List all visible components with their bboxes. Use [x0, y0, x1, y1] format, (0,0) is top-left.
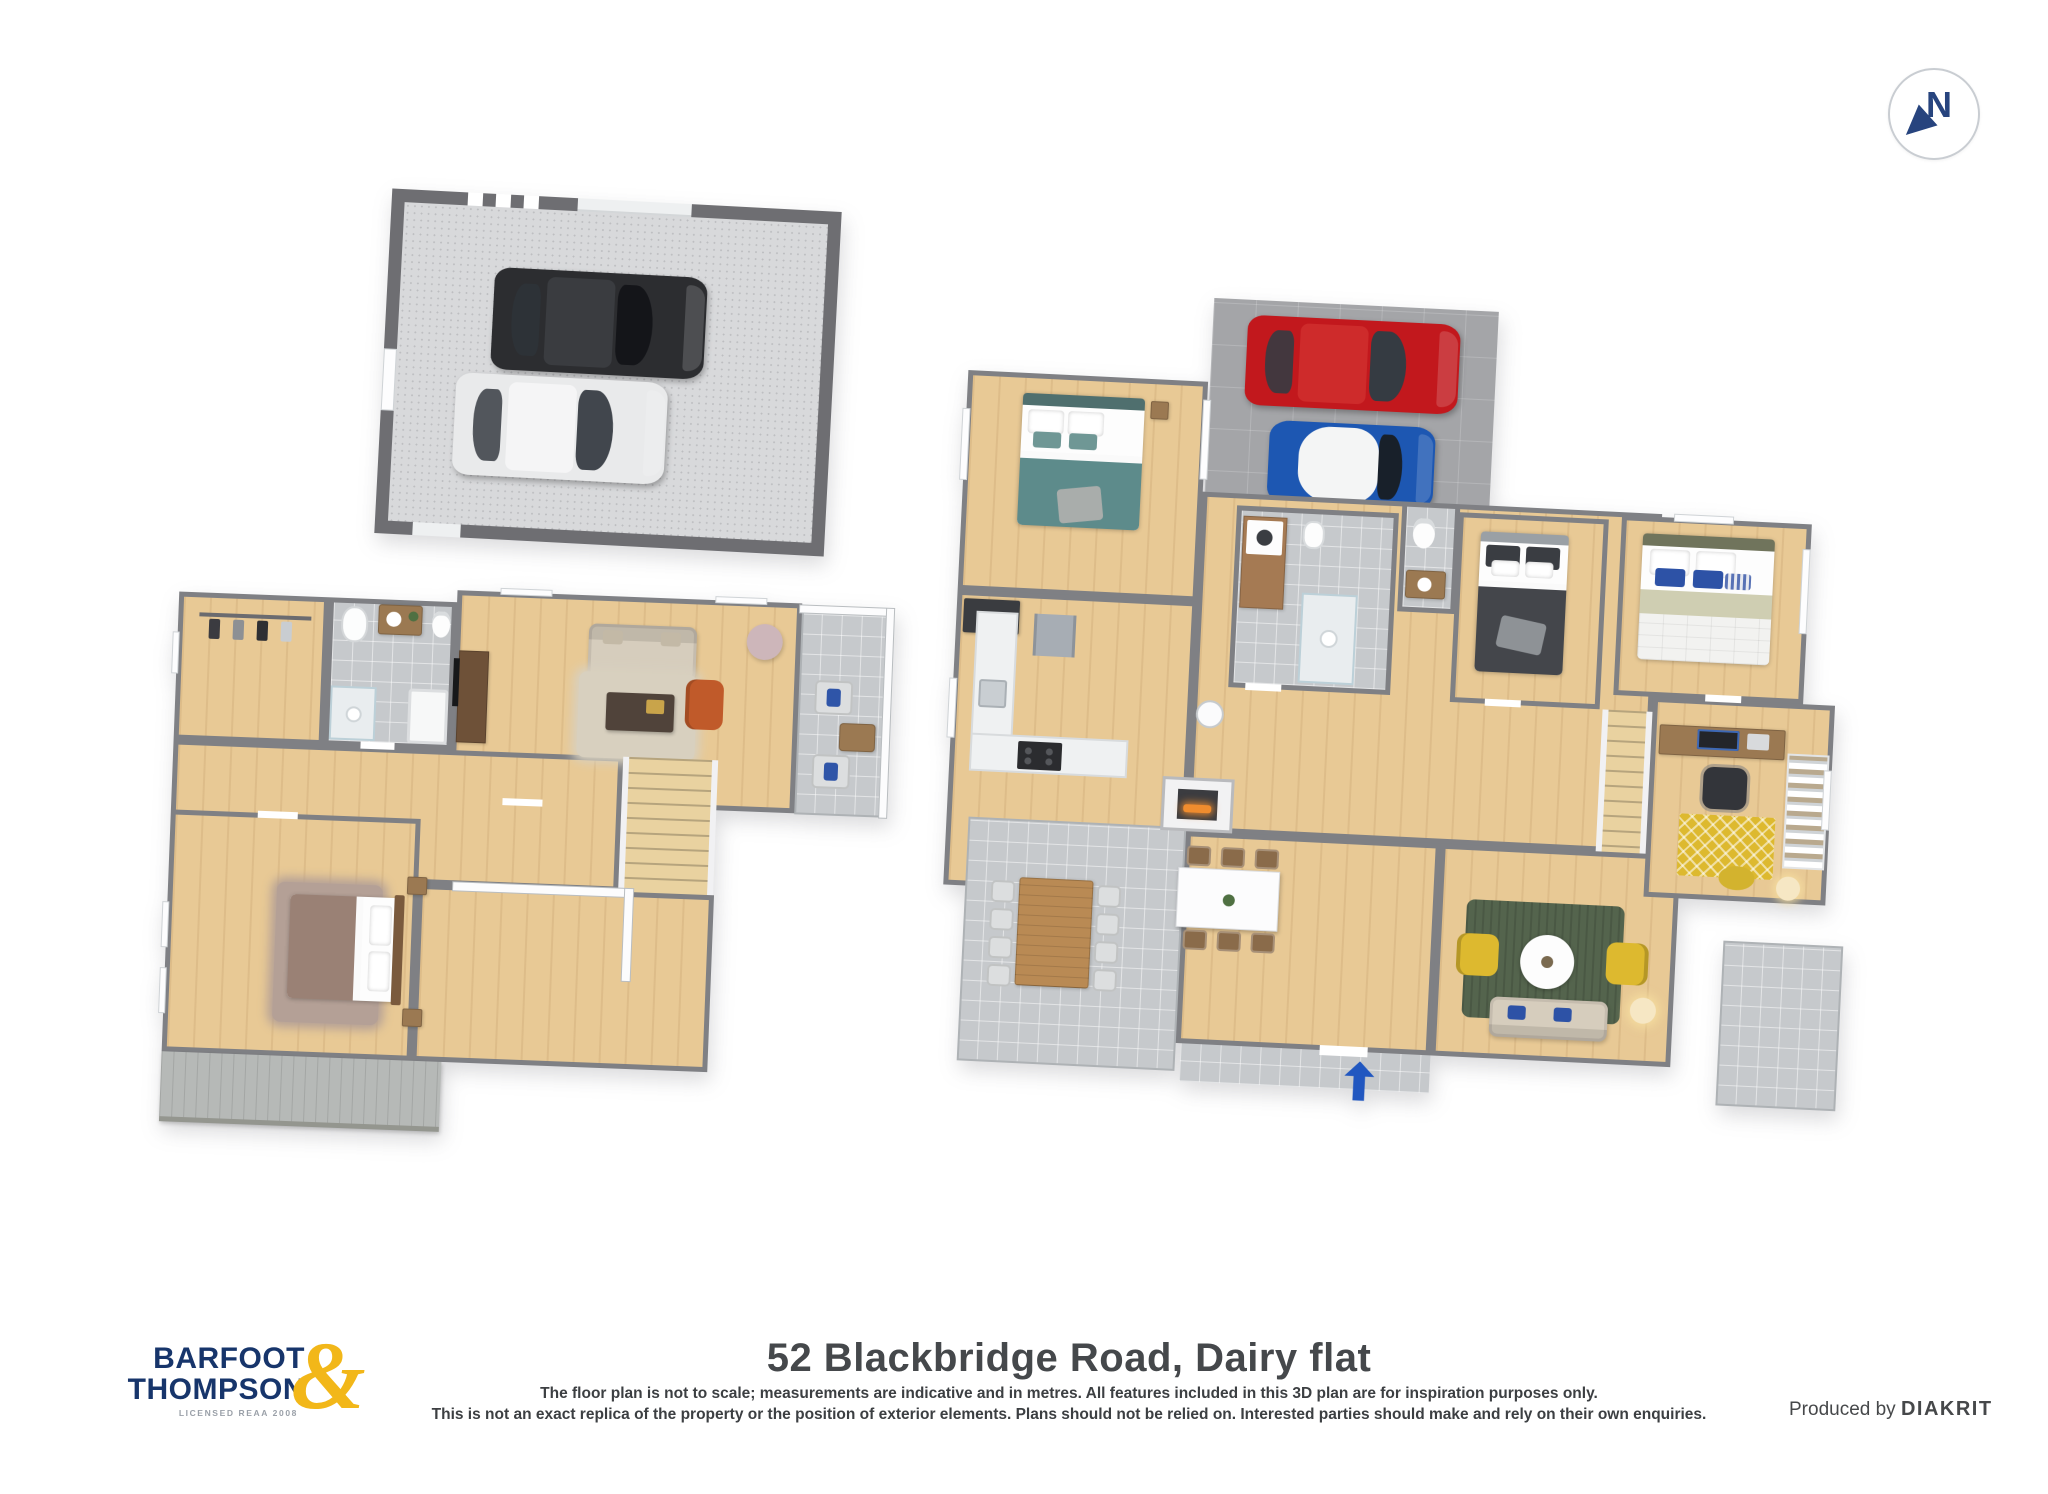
car-windshield	[1376, 434, 1404, 500]
bedroom-bed	[287, 894, 403, 1002]
page-title: 52 Blackbridge Road, Dairy flat	[90, 1336, 2048, 1381]
dining-chair	[1216, 931, 1241, 952]
dining-table	[1175, 867, 1280, 932]
yellow-armchair	[1605, 942, 1649, 986]
car-roof	[505, 382, 577, 473]
car-rear-window	[510, 283, 541, 356]
garage-window-slit	[523, 195, 539, 209]
hanging-clothes	[280, 621, 292, 641]
plant	[408, 611, 418, 621]
office-chair	[1702, 766, 1748, 810]
white-car	[451, 372, 668, 485]
hanging-clothes	[232, 620, 244, 640]
outdoor-chair	[1092, 969, 1117, 992]
entrance-arrow-icon	[1343, 1060, 1375, 1101]
entrance-arrow-shape	[1343, 1061, 1375, 1102]
balcony-table	[839, 723, 876, 752]
car-windshield	[614, 285, 654, 366]
shower	[329, 685, 377, 741]
nightstand	[1150, 401, 1169, 420]
balcony-chair	[811, 754, 850, 789]
decor	[1541, 956, 1554, 969]
washing-machine	[1246, 520, 1284, 556]
accent-pillow	[1069, 433, 1098, 450]
blue-bed	[1637, 533, 1775, 665]
nightstand	[402, 1008, 423, 1027]
car-white-roof	[1296, 425, 1379, 503]
outdoor-chair	[986, 964, 1011, 987]
disclaimer-line-2: This is not an exact replica of the prop…	[90, 1406, 2048, 1424]
hanging-clothes	[256, 621, 268, 641]
balcony-chair	[814, 680, 853, 715]
kitchen-sink	[978, 679, 1007, 708]
garage-window-slit	[496, 194, 512, 208]
credit-prefix: Produced by	[1789, 1399, 1896, 1420]
car-hood	[1436, 331, 1459, 407]
outdoor-table	[1014, 877, 1093, 988]
dining-chair	[1182, 929, 1207, 950]
nightstand	[407, 876, 428, 895]
shower	[1298, 593, 1358, 686]
pillow	[367, 951, 391, 992]
main-level-plan	[925, 258, 1895, 1134]
garage-plan	[374, 188, 841, 556]
pillow	[369, 905, 393, 946]
dining-chair	[1250, 933, 1275, 954]
accent-armchair	[684, 679, 724, 730]
lower-level-plan	[149, 571, 900, 1161]
wc-vanity	[1405, 570, 1446, 600]
centerpiece	[1223, 894, 1236, 907]
disclaimer-line-1: The floor plan is not to scale; measurem…	[90, 1385, 2048, 1403]
car-hood	[682, 285, 706, 372]
outdoor-chair	[1094, 941, 1119, 964]
door-opening	[258, 811, 298, 820]
pillow	[1525, 561, 1554, 578]
dining-chair	[1254, 849, 1279, 870]
deck	[159, 1051, 441, 1132]
yellow-armchair	[1455, 933, 1499, 977]
staircase	[1596, 709, 1653, 853]
floorplan-canvas: N	[0, 0, 2048, 1494]
accent-pillow	[1693, 570, 1724, 589]
outdoor-chair	[1096, 885, 1121, 908]
car-hood	[642, 390, 666, 477]
blue-cushion	[1507, 1005, 1526, 1020]
window	[1821, 770, 1832, 830]
gray-bed	[1474, 531, 1569, 675]
living-sofa	[1488, 996, 1608, 1042]
black-car	[490, 267, 708, 380]
car-windshield	[1368, 331, 1408, 403]
built-in-bathtub	[407, 688, 449, 744]
blue-cushion	[1553, 1007, 1572, 1022]
producer-credit: Produced by DIAKRIT	[1789, 1398, 1993, 1421]
stove	[1017, 741, 1062, 771]
compass: N	[1888, 68, 1980, 160]
dining-chair	[1186, 845, 1211, 866]
outdoor-chair	[1095, 913, 1120, 936]
accent-pillow	[1033, 431, 1062, 448]
teal-bed	[1017, 393, 1145, 531]
car-roof	[1298, 324, 1370, 405]
pillow	[1027, 409, 1064, 435]
outdoor-chair	[990, 880, 1015, 903]
garage-window-slit	[468, 192, 484, 206]
landing	[411, 884, 714, 1072]
fireplace	[1160, 776, 1235, 833]
office-desk	[1658, 724, 1785, 760]
outdoor-chair	[989, 908, 1014, 931]
monitor	[1697, 729, 1740, 751]
fridge	[1033, 614, 1077, 658]
door-opening	[502, 798, 542, 807]
car-roof	[544, 277, 617, 368]
dining-room	[1176, 831, 1441, 1055]
accent-pillow	[1655, 568, 1686, 587]
car-rear-window	[471, 388, 502, 461]
garage-rear-door	[412, 522, 461, 537]
bathroom-vanity	[378, 604, 423, 636]
quilt	[1637, 613, 1771, 665]
bathtub	[340, 606, 368, 643]
laptop	[1747, 734, 1770, 751]
throw-blanket	[1057, 486, 1104, 524]
red-car	[1244, 315, 1461, 415]
car-rear-window	[1264, 329, 1295, 393]
staircase	[618, 757, 718, 896]
pillow	[1491, 560, 1520, 577]
dining-chair	[1220, 847, 1245, 868]
credit-brand: DIAKRIT	[1901, 1398, 1993, 1420]
outdoor-chair	[988, 936, 1013, 959]
duvet	[287, 894, 359, 1001]
basin	[1304, 523, 1323, 548]
car-hood	[1416, 434, 1434, 504]
fire	[1183, 804, 1211, 813]
coffee-table	[605, 692, 674, 733]
patterned-pillow	[1725, 573, 1752, 590]
door-opening	[360, 742, 394, 750]
tv-sideboard	[456, 650, 490, 743]
terrace	[1715, 941, 1843, 1112]
hanging-clothes	[208, 619, 220, 639]
car-windshield	[575, 390, 615, 471]
